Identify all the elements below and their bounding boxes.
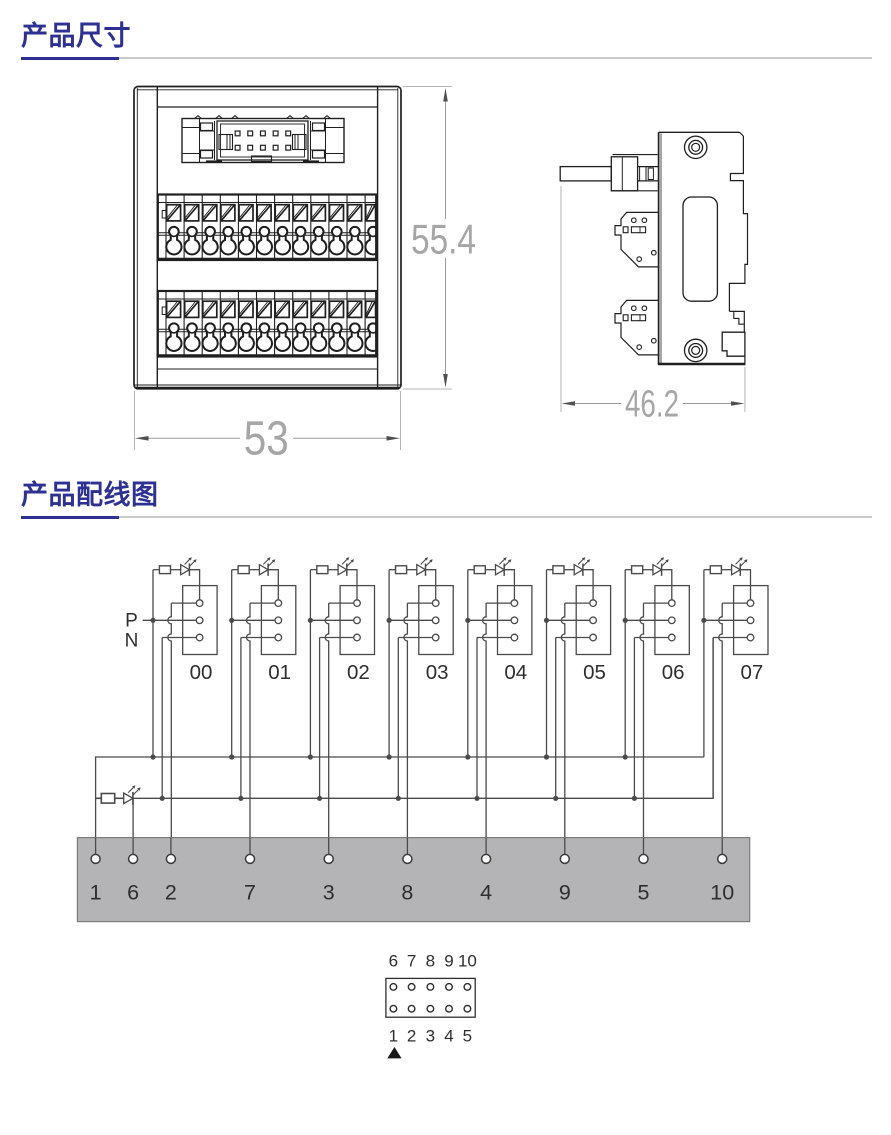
svg-text:5: 5 [638, 881, 650, 905]
svg-text:7: 7 [407, 952, 416, 971]
svg-text:04: 04 [504, 661, 527, 684]
svg-text:46.2: 46.2 [625, 384, 679, 426]
svg-text:5: 5 [463, 1027, 472, 1046]
svg-text:P: P [125, 611, 138, 632]
svg-text:9: 9 [559, 881, 571, 905]
svg-text:4: 4 [480, 881, 492, 905]
svg-text:07: 07 [740, 661, 763, 684]
svg-text:9: 9 [444, 952, 453, 971]
svg-text:7: 7 [244, 881, 256, 905]
svg-text:1: 1 [389, 1027, 398, 1046]
svg-text:03: 03 [426, 661, 449, 684]
svg-text:10: 10 [458, 952, 477, 971]
svg-text:05: 05 [583, 661, 606, 684]
svg-text:8: 8 [426, 952, 435, 971]
svg-text:55.4: 55.4 [411, 216, 476, 263]
svg-text:4: 4 [444, 1027, 453, 1046]
svg-text:N: N [125, 631, 139, 652]
svg-text:2: 2 [165, 881, 177, 905]
svg-text:8: 8 [401, 881, 413, 905]
svg-text:3: 3 [426, 1027, 435, 1046]
svg-text:02: 02 [347, 661, 370, 684]
svg-text:2: 2 [407, 1027, 416, 1046]
svg-text:1: 1 [90, 881, 102, 905]
svg-text:3: 3 [323, 881, 335, 905]
svg-text:01: 01 [268, 661, 291, 684]
svg-text:6: 6 [127, 881, 139, 905]
svg-text:00: 00 [190, 661, 213, 684]
svg-text:53: 53 [244, 413, 289, 466]
svg-text:10: 10 [710, 881, 734, 905]
svg-text:06: 06 [662, 661, 685, 684]
svg-text:6: 6 [389, 952, 398, 971]
